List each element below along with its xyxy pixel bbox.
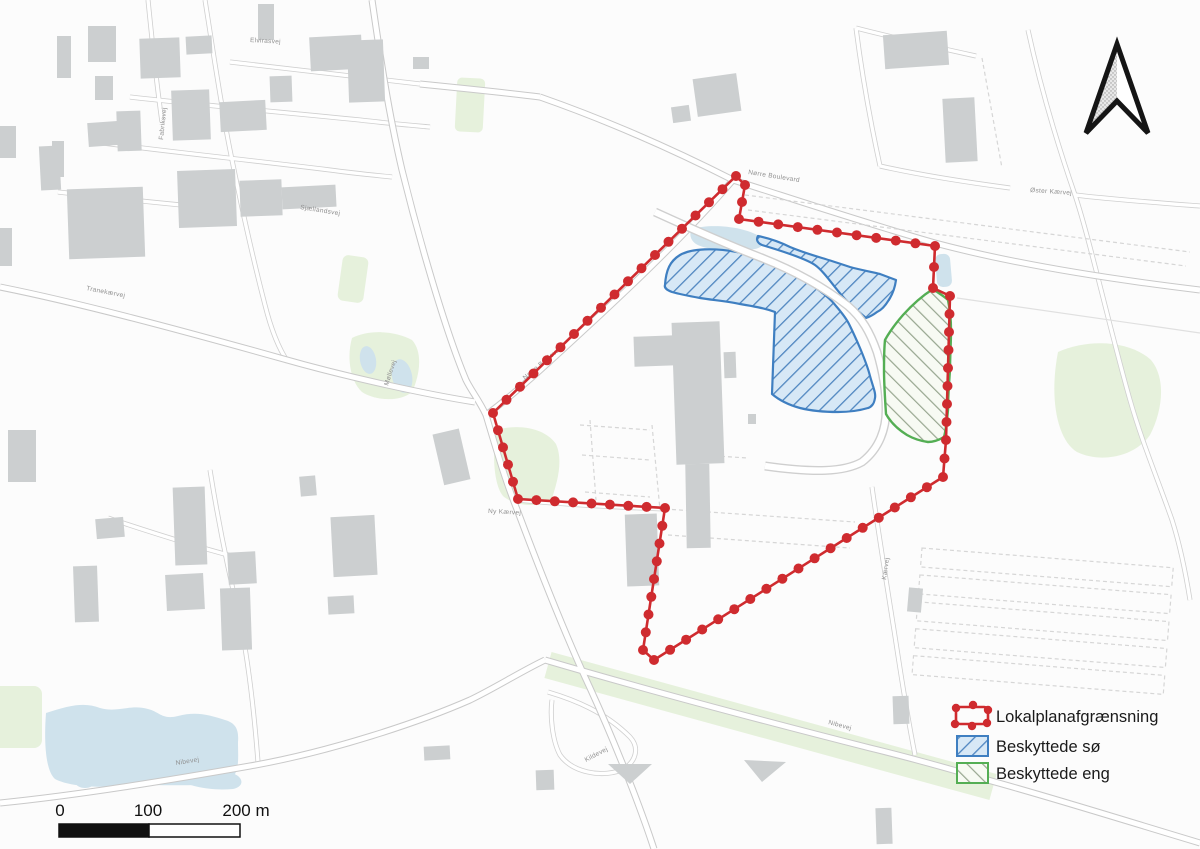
boundary-dot: [644, 610, 654, 620]
boundary-dot: [832, 228, 842, 238]
boundary-dot: [945, 309, 955, 319]
boundary-dot: [704, 197, 714, 207]
boundary-dot: [515, 382, 525, 392]
boundary-dot: [502, 395, 512, 405]
boundary-dot: [660, 503, 670, 513]
boundary-dot: [942, 399, 952, 409]
boundary-dot: [731, 171, 741, 181]
boundary-dot: [650, 250, 660, 260]
boundary-dot: [794, 564, 804, 574]
boundary-dot: [826, 543, 836, 553]
boundary-dot: [745, 594, 755, 604]
boundary-dot: [531, 495, 541, 505]
boundary-dot: [503, 460, 513, 470]
boundary-dot: [929, 262, 939, 272]
boundary-dot: [793, 222, 803, 232]
boundary-dot: [944, 327, 954, 337]
boundary-dot: [941, 435, 951, 445]
boundary-dot: [906, 492, 916, 502]
boundary-dot: [657, 521, 667, 531]
boundary-dot: [691, 211, 701, 221]
scale-tick-0: 0: [55, 801, 64, 820]
boundary-dot: [945, 291, 955, 301]
boundary-dot: [810, 553, 820, 563]
boundary-dot: [944, 345, 954, 355]
boundary-dot: [922, 482, 932, 492]
boundary-dot: [596, 303, 606, 313]
boundary-dot: [858, 523, 868, 533]
boundary-dot: [569, 329, 579, 339]
legend-symbol-meadow: [957, 763, 988, 783]
boundary-dot: [655, 539, 665, 549]
legend-label-lake: Beskyttede sø: [996, 738, 1101, 756]
boundary-dot: [697, 625, 707, 635]
boundary-dot: [529, 369, 539, 379]
boundary-dot: [677, 224, 687, 234]
scale-tick-200: 200 m: [222, 801, 269, 820]
boundary-dot: [842, 533, 852, 543]
boundary-dot: [623, 501, 633, 511]
legend-item-meadow: Beskyttede eng: [957, 763, 1110, 783]
boundary-dot: [740, 180, 750, 190]
legend-label-meadow: Beskyttede eng: [996, 765, 1110, 783]
boundary-dot: [729, 604, 739, 614]
legend-symbol-lake: [957, 736, 988, 756]
boundary-dot: [649, 574, 659, 584]
boundary-dot: [734, 214, 744, 224]
boundary-dot: [665, 645, 675, 655]
boundary-dot: [713, 614, 723, 624]
boundary-dot: [681, 635, 691, 645]
boundary-dot: [852, 230, 862, 240]
boundary-dot: [777, 574, 787, 584]
boundary-dot: [568, 497, 578, 507]
boundary-dot: [943, 381, 953, 391]
boundary-dot: [874, 513, 884, 523]
boundary-dot: [583, 316, 593, 326]
boundary-dot: [890, 503, 900, 513]
boundary-dot: [642, 502, 652, 512]
boundary-dot: [910, 238, 920, 248]
boundary-dot: [493, 425, 503, 435]
boundary-dot: [641, 627, 651, 637]
boundary-dot: [773, 219, 783, 229]
legend-label-boundary: Lokalplanafgrænsning: [996, 708, 1158, 726]
boundary-dot: [891, 236, 901, 246]
boundary-dot: [754, 217, 764, 227]
boundary-dot: [737, 197, 747, 207]
boundary-dot: [930, 241, 940, 251]
boundary-dot: [649, 655, 659, 665]
boundary-dot: [664, 237, 674, 247]
boundary-dot: [938, 472, 948, 482]
boundary-dot: [942, 417, 952, 427]
boundary-dot: [623, 276, 633, 286]
map-canvas: Elvirasvej Tranekærvej Sjællandsvej Fabr…: [0, 0, 1200, 849]
boundary-dot: [943, 363, 953, 373]
boundary-dot: [646, 592, 656, 602]
boundary-dot: [542, 355, 552, 365]
boundary-dot: [637, 263, 647, 273]
boundary-dot: [587, 499, 597, 509]
scale-tick-100: 100: [134, 801, 162, 820]
boundary-dot: [638, 645, 648, 655]
boundary-dot: [928, 283, 938, 293]
boundary-dot: [812, 225, 822, 235]
boundary-dot: [550, 496, 560, 506]
boundary-dot: [488, 408, 498, 418]
boundary-dot: [605, 500, 615, 510]
boundary-dot: [761, 584, 771, 594]
boundary-dot: [610, 290, 620, 300]
boundary-dot: [498, 442, 508, 452]
boundary-dot: [556, 342, 566, 352]
boundary-dot: [508, 477, 518, 487]
boundary-dot: [718, 184, 728, 194]
map-page: Elvirasvej Tranekærvej Sjællandsvej Fabr…: [0, 0, 1200, 849]
boundary-dot: [871, 233, 881, 243]
legend-item-lake: Beskyttede sø: [957, 736, 1101, 756]
boundary-dot: [940, 454, 950, 464]
boundary-dot: [652, 556, 662, 566]
boundary-dot: [513, 494, 523, 504]
